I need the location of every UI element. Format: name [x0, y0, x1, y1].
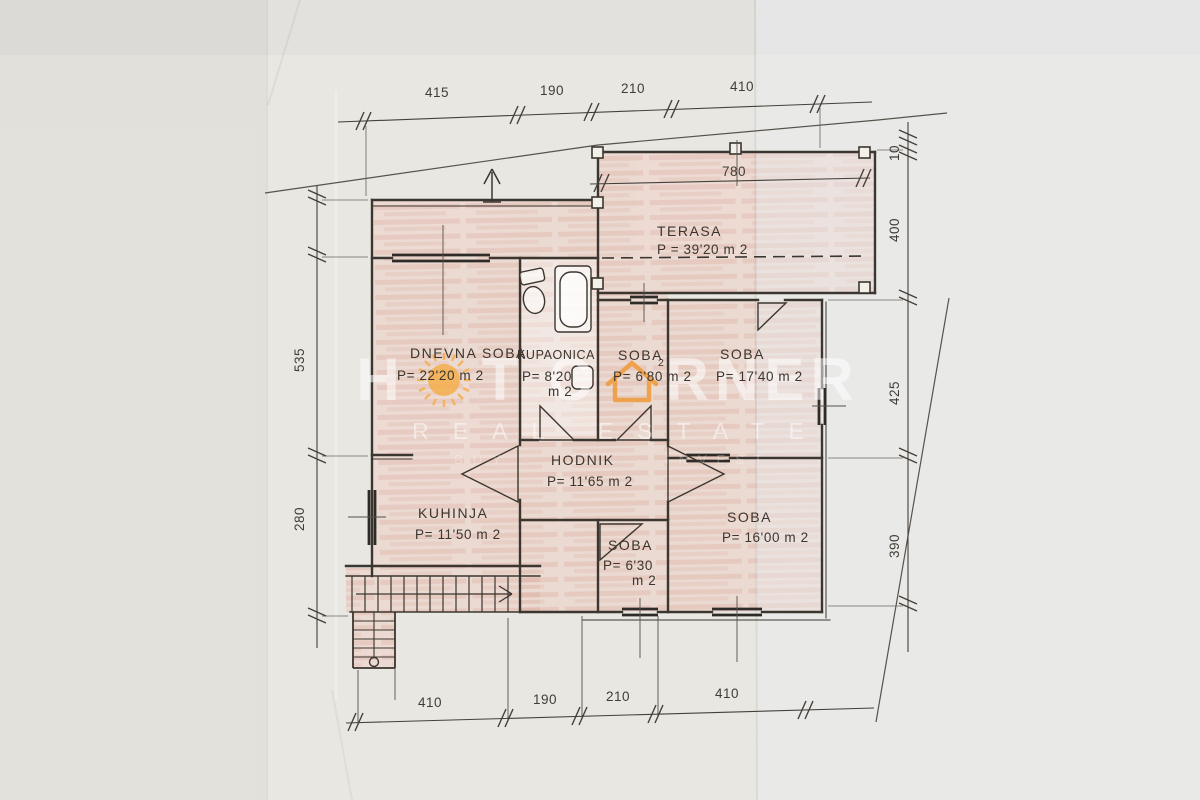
dim-right-2: 400 — [887, 218, 902, 242]
room-label-soba-2: SOBA — [720, 346, 765, 362]
dimension-labels: 415 190 210 410 410 190 210 410 535 280 … — [292, 79, 902, 710]
room-area-soba-1: P= 6'80 m 2 — [613, 369, 692, 384]
room-labels: TERASA P = 39'20 m 2 DNEVNA SOBA P= 22'2… — [397, 223, 809, 588]
dim-terrace-width: 780 — [722, 164, 746, 179]
room-label-hodnik: HODNIK — [551, 452, 614, 468]
dim-right-3: 425 — [887, 381, 902, 405]
room-label-terasa: TERASA — [657, 223, 722, 239]
room-area-kupaonica-2: m 2 — [548, 384, 572, 399]
room-label-soba-1-sup: 2 — [658, 357, 664, 369]
room-label-kupaonica: KUPAONICA — [517, 348, 595, 362]
dim-bottom-3: 210 — [606, 689, 630, 704]
dim-top-4: 410 — [730, 79, 754, 94]
room-area-soba-3-2: m 2 — [632, 573, 656, 588]
room-area-soba-2: P= 17'40 m 2 — [716, 369, 803, 384]
room-area-soba-4: P= 16'00 m 2 — [722, 530, 809, 545]
dim-right-1: 10 — [887, 145, 902, 161]
dim-left-1: 535 — [292, 348, 307, 372]
room-area-kupaonica: P= 8'20 — [522, 369, 572, 384]
dim-top-2: 190 — [540, 83, 564, 98]
plan-labels: TERASA P = 39'20 m 2 DNEVNA SOBA P= 22'2… — [0, 0, 1200, 800]
dim-left-2: 280 — [292, 507, 307, 531]
dim-right-4: 390 — [887, 534, 902, 558]
dim-bottom-1: 410 — [418, 695, 442, 710]
room-label-kuhinja: KUHINJA — [418, 505, 488, 521]
dim-bottom-4: 410 — [715, 686, 739, 701]
room-label-dnevna-soba: DNEVNA SOBA — [410, 345, 527, 361]
room-area-terasa: P = 39'20 m 2 — [657, 242, 748, 257]
dim-top-3: 210 — [621, 81, 645, 96]
room-area-dnevna-soba: P= 22'20 m 2 — [397, 368, 484, 383]
room-label-soba-4: SOBA — [727, 509, 772, 525]
room-label-soba-3: SOBA — [608, 537, 653, 553]
room-area-soba-3: P= 6'30 — [603, 558, 653, 573]
dim-bottom-2: 190 — [533, 692, 557, 707]
room-label-soba-1: SOBA — [618, 347, 663, 363]
room-area-kuhinja: P= 11'50 m 2 — [415, 527, 501, 542]
floor-plan-scan: H T C — [0, 0, 1200, 800]
dim-top-1: 415 — [425, 85, 449, 100]
room-area-hodnik: P= 11'65 m 2 — [547, 474, 633, 489]
